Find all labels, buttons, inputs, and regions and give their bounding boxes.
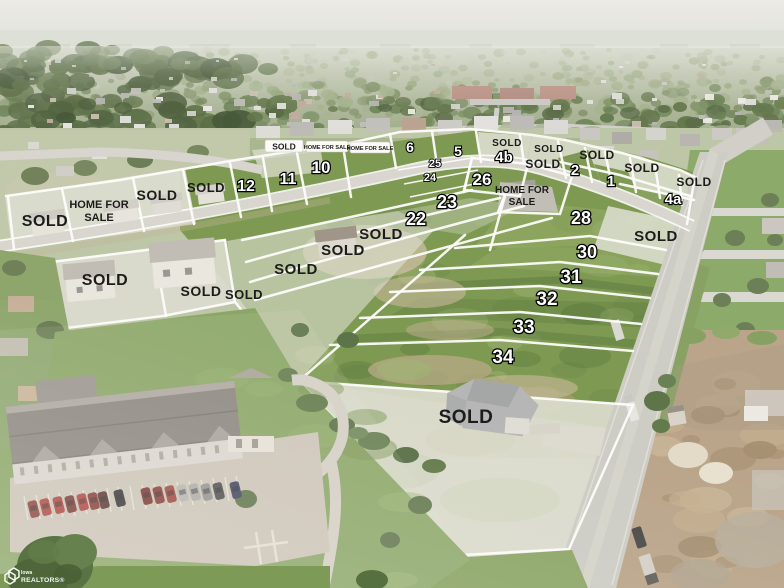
svg-text:SOLD: SOLD	[82, 272, 128, 289]
svg-text:12: 12	[237, 178, 255, 195]
svg-text:SOLD: SOLD	[439, 407, 494, 428]
svg-text:28: 28	[571, 208, 591, 228]
svg-text:SOLD: SOLD	[181, 283, 222, 299]
svg-text:23: 23	[437, 192, 457, 212]
svg-text:SOLD: SOLD	[272, 142, 296, 152]
svg-text:6: 6	[406, 139, 414, 155]
svg-text:SALE: SALE	[84, 212, 113, 224]
svg-text:34: 34	[492, 347, 514, 368]
svg-text:SOLD: SOLD	[187, 180, 225, 195]
svg-text:SOLD: SOLD	[359, 226, 403, 243]
svg-text:2: 2	[571, 162, 579, 179]
svg-text:SOLD: SOLD	[534, 144, 564, 155]
svg-text:11: 11	[280, 171, 297, 188]
svg-text:4a: 4a	[665, 191, 682, 208]
svg-text:SOLD: SOLD	[22, 213, 68, 230]
svg-text:SOLD: SOLD	[634, 228, 678, 245]
svg-text:SOLD: SOLD	[624, 161, 659, 175]
svg-text:SOLD: SOLD	[321, 242, 365, 259]
svg-text:31: 31	[560, 267, 582, 288]
svg-text:25: 25	[429, 158, 441, 170]
svg-text:HOME FOR: HOME FOR	[495, 185, 550, 196]
svg-text:26: 26	[473, 170, 492, 189]
svg-text:SALE: SALE	[509, 197, 536, 208]
svg-text:HOME FOR SALE: HOME FOR SALE	[347, 146, 394, 152]
svg-text:SOLD: SOLD	[492, 138, 522, 149]
svg-text:SOLD: SOLD	[274, 261, 318, 278]
svg-text:32: 32	[536, 289, 557, 310]
svg-text:SOLD: SOLD	[579, 148, 614, 162]
svg-text:HOME FOR: HOME FOR	[69, 199, 128, 211]
svg-text:4b: 4b	[495, 149, 513, 166]
svg-text:5: 5	[454, 143, 462, 159]
svg-text:Iowa: Iowa	[21, 570, 32, 576]
svg-text:SOLD: SOLD	[225, 287, 263, 302]
svg-text:SOLD: SOLD	[525, 157, 560, 171]
svg-text:10: 10	[312, 158, 331, 177]
svg-text:1: 1	[607, 173, 615, 190]
svg-text:SOLD: SOLD	[137, 187, 178, 203]
svg-text:SOLD: SOLD	[676, 175, 711, 189]
svg-text:REALTORS®: REALTORS®	[21, 576, 65, 584]
svg-text:33: 33	[513, 317, 534, 338]
svg-text:22: 22	[406, 209, 426, 229]
svg-text:30: 30	[577, 242, 597, 262]
svg-text:24: 24	[424, 172, 437, 184]
svg-text:HOME FOR SALE: HOME FOR SALE	[304, 145, 351, 151]
